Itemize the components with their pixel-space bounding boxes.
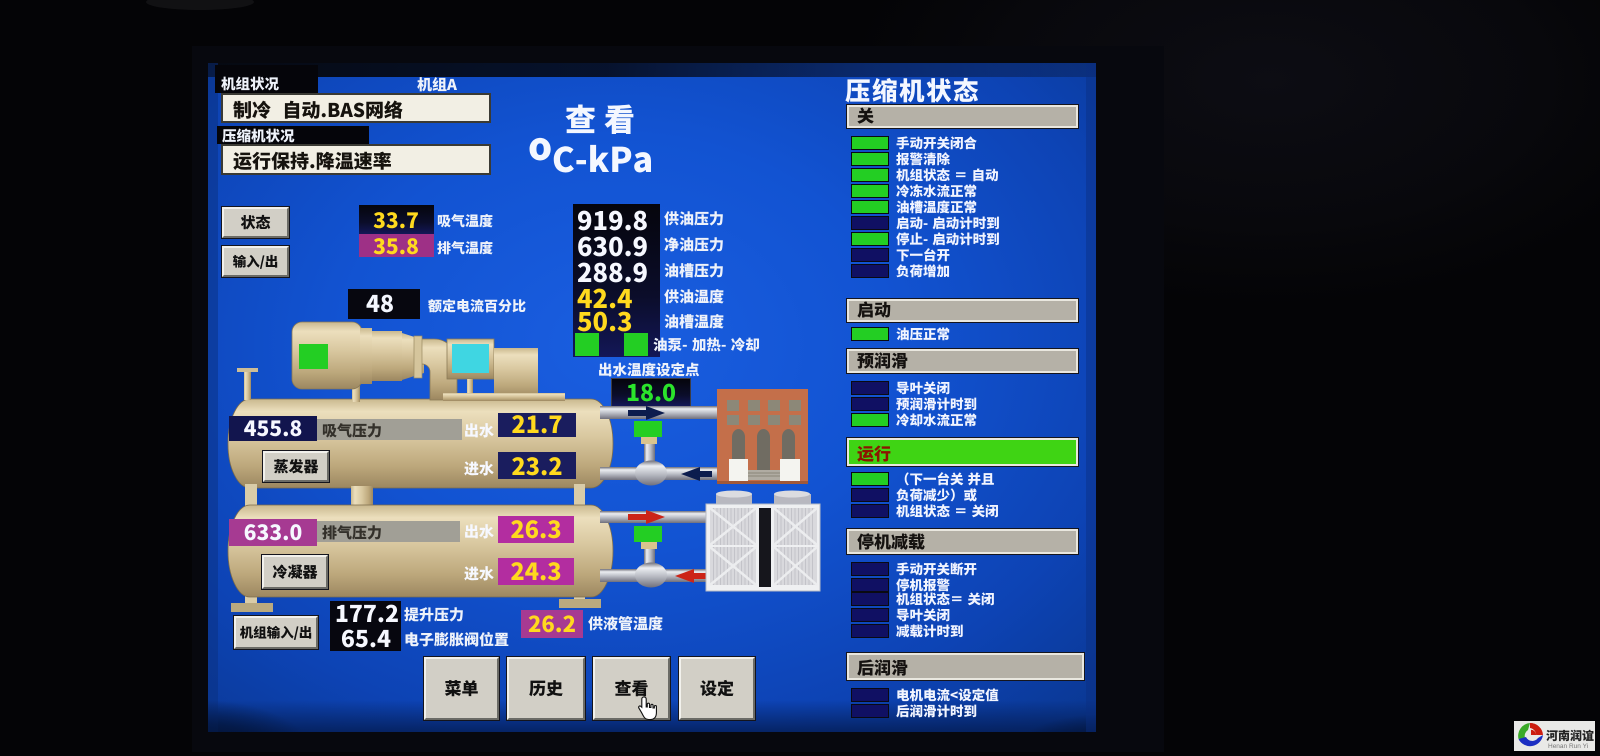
svg-text:Henan Run Yi: Henan Run Yi	[1548, 743, 1588, 750]
